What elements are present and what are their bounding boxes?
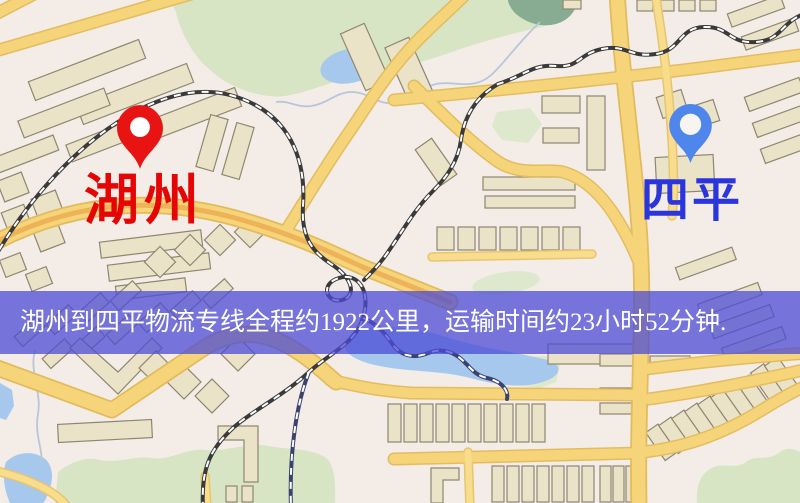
origin-label: 湖州: [84, 173, 204, 228]
destination-pin-icon[interactable]: [668, 103, 713, 164]
map-background: [0, 0, 800, 503]
route-info-banner: 湖州到四平物流专线全程约1922公里，运输时间约23小时52分钟.: [0, 291, 800, 354]
route-info-text: 湖州到四平物流专线全程约1922公里，运输时间约23小时52分钟.: [20, 309, 726, 336]
destination-label: 四平: [641, 177, 743, 225]
origin-pin-icon[interactable]: [116, 104, 164, 170]
map-canvas[interactable]: 湖州到四平物流专线全程约1922公里，运输时间约23小时52分钟. 湖州 四平: [0, 0, 800, 503]
